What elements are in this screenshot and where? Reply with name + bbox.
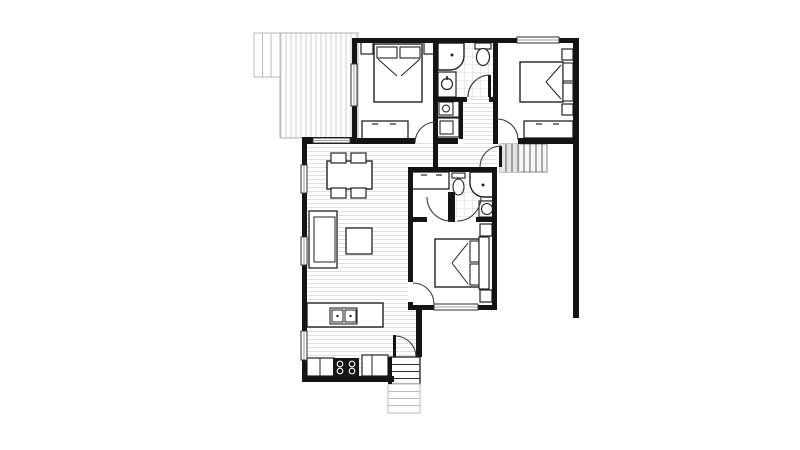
- kitchen-bench: [362, 355, 388, 376]
- shower-1: [438, 43, 464, 70]
- door-leaf: [499, 146, 502, 167]
- door-arc: [413, 283, 434, 304]
- wardrobe-1: [362, 121, 408, 139]
- shower-drain: [451, 54, 454, 57]
- wardrobe-3: [412, 172, 449, 189]
- basin-1: [442, 79, 453, 90]
- toilet-1-bowl: [477, 49, 490, 66]
- wall: [416, 305, 422, 357]
- bed-1-pillow: [377, 47, 397, 58]
- bed-2: [520, 62, 563, 102]
- floor-plan-page: [0, 0, 800, 450]
- dining-chair: [351, 188, 366, 198]
- wall: [408, 167, 413, 282]
- wardrobe-2: [524, 121, 573, 138]
- floor-plan: [0, 0, 800, 450]
- toilet-2-tank: [452, 173, 465, 178]
- hall-wood-floor: [463, 99, 493, 144]
- entry-stairs-upper: [390, 357, 420, 384]
- wall: [448, 192, 455, 222]
- dining-chair: [351, 153, 366, 163]
- nightstand: [562, 49, 573, 60]
- wall: [408, 305, 435, 310]
- wall: [489, 97, 493, 102]
- bed-3-pillow: [470, 264, 479, 285]
- hall-wood-floor: [438, 144, 497, 167]
- wall: [408, 217, 427, 222]
- door-leaf: [488, 75, 491, 97]
- wall: [302, 376, 394, 382]
- headboard-3: [479, 237, 489, 289]
- washer: [439, 102, 453, 115]
- nightstand: [480, 290, 492, 302]
- wall: [518, 138, 578, 144]
- sink-drain: [336, 315, 338, 317]
- deck-floor: [280, 33, 358, 138]
- wall: [493, 38, 498, 144]
- wall: [435, 138, 458, 144]
- stove: [333, 358, 359, 376]
- deck-steps: [254, 33, 280, 77]
- wall: [476, 305, 497, 310]
- wall: [493, 138, 497, 144]
- wall: [408, 167, 497, 172]
- door-arc: [427, 197, 451, 221]
- nightstand: [480, 224, 492, 236]
- wall: [388, 357, 392, 384]
- door-arc: [497, 119, 518, 140]
- bed-1-pillow: [400, 47, 420, 58]
- basin-2: [482, 204, 493, 215]
- wall: [476, 217, 497, 222]
- wall: [459, 99, 463, 139]
- dryer: [440, 121, 453, 134]
- nightstand: [361, 42, 373, 54]
- wall: [433, 143, 438, 168]
- bed-2-pillow: [563, 63, 573, 81]
- wall: [348, 138, 415, 144]
- door-leaf: [393, 335, 396, 357]
- sofa-seat: [314, 217, 335, 262]
- shower-drain: [482, 184, 485, 187]
- bed-2-pillow: [563, 83, 573, 101]
- east-stairs-landing: [500, 144, 520, 172]
- sink-drain: [349, 315, 351, 317]
- nightstand: [562, 104, 573, 115]
- door-arc: [415, 122, 436, 143]
- dining-chair: [331, 188, 346, 198]
- bed-3-pillow: [470, 241, 479, 262]
- wall: [433, 38, 438, 144]
- wall: [492, 167, 497, 310]
- coffee-table: [346, 228, 372, 254]
- boundary-wall: [573, 38, 579, 318]
- dining-chair: [331, 153, 346, 163]
- dining-table: [327, 161, 372, 189]
